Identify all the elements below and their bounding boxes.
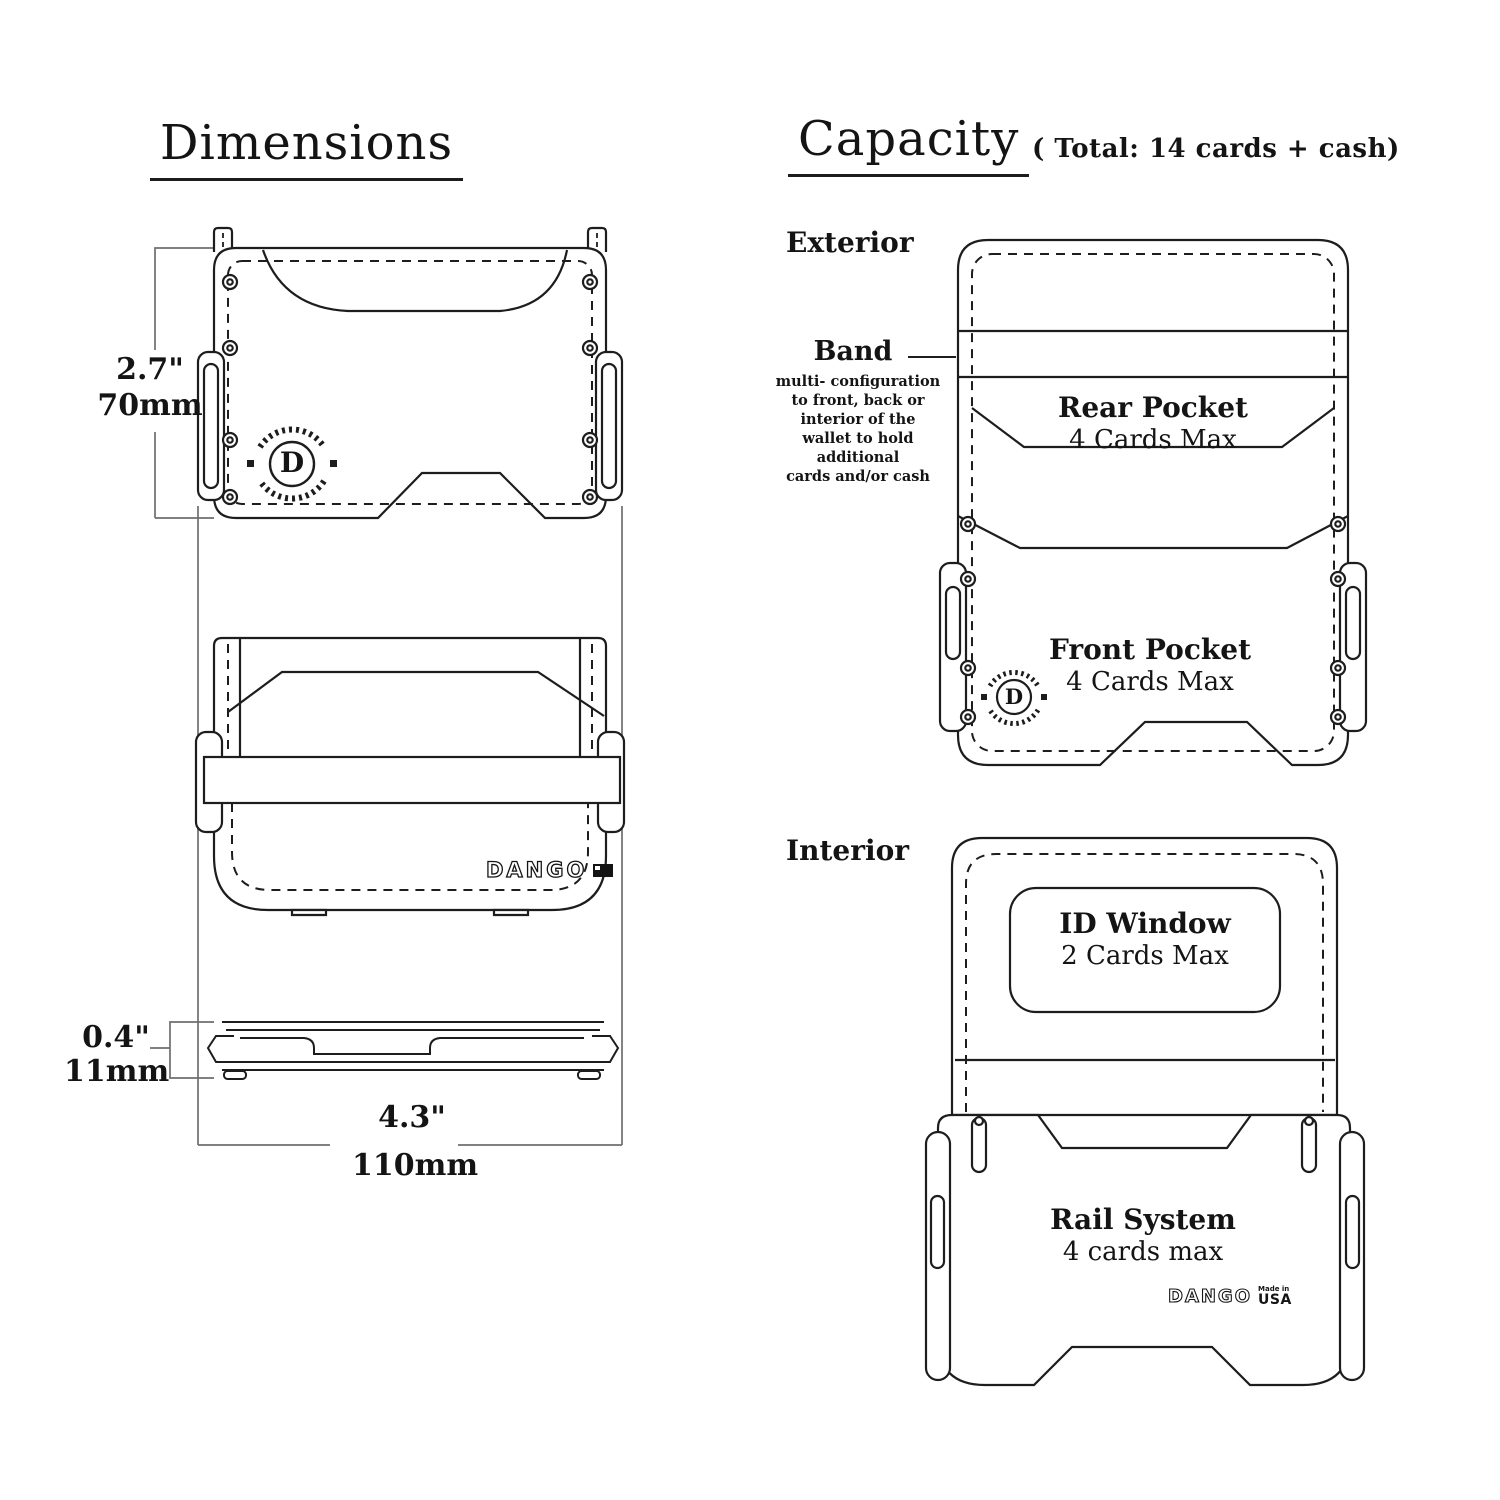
thickness-dimension-mm: 11mm	[64, 1054, 168, 1089]
band-description: multi- configuration to front, back or i…	[768, 372, 948, 486]
front-pocket-capacity: 4 Cards Max	[1020, 666, 1280, 700]
dango-logo-text: DANGO	[1168, 1286, 1252, 1307]
rail-system-label: Rail System	[1013, 1204, 1273, 1236]
side-view-drawing	[208, 1022, 618, 1079]
exterior-label: Exterior	[786, 226, 914, 259]
id-window-capacity: 2 Cards Max	[1015, 940, 1275, 974]
front-view-drawing	[198, 228, 622, 518]
interior-label: Interior	[786, 834, 909, 867]
front-pocket-annotation: Front Pocket 4 Cards Max	[1020, 634, 1280, 700]
badge-letter-exterior: D	[996, 684, 1032, 709]
dango-logo-back-view: DANGO	[486, 858, 613, 882]
band-desc-line: wallet to hold additional	[768, 429, 948, 467]
wallet-spec-diagram: Dimensions Capacity ( Total: 14 cards + …	[0, 0, 1500, 1500]
height-dimension-inches: 2.7"	[95, 352, 205, 387]
dango-flag-icon	[593, 864, 613, 877]
rail-system-annotation: Rail System 4 cards max	[1013, 1204, 1273, 1270]
rear-pocket-capacity: 4 Cards Max	[1023, 424, 1283, 458]
badge-letter-front-view: D	[272, 446, 312, 479]
rear-pocket-annotation: Rear Pocket 4 Cards Max	[1023, 392, 1283, 458]
id-window-label: ID Window	[1015, 908, 1275, 940]
band-desc-line: interior of the	[768, 410, 948, 429]
width-dimension-mm: 110mm	[352, 1148, 472, 1183]
height-dimension-mm: 70mm	[95, 388, 205, 423]
front-pocket-label: Front Pocket	[1020, 634, 1280, 666]
thickness-dimension-inches: 0.4"	[64, 1020, 168, 1055]
capacity-title: Capacity	[788, 114, 1029, 177]
dango-logo-text: DANGO	[486, 858, 587, 882]
width-dimension-inches: 4.3"	[352, 1100, 472, 1135]
usa-text: USA	[1258, 1293, 1292, 1307]
dimensions-title: Dimensions	[150, 118, 463, 181]
diagram-line-art	[0, 0, 1500, 1500]
band-desc-line: to front, back or	[768, 391, 948, 410]
rail-system-capacity: 4 cards max	[1013, 1236, 1273, 1270]
band-desc-line: multi- configuration	[768, 372, 948, 391]
dango-logo-interior: DANGO Made in USA	[1168, 1286, 1292, 1307]
rear-pocket-label: Rear Pocket	[1023, 392, 1283, 424]
capacity-note: ( Total: 14 cards + cash)	[1032, 134, 1400, 164]
band-desc-line: cards and/or cash	[768, 467, 948, 486]
id-window-annotation: ID Window 2 Cards Max	[1015, 908, 1275, 974]
band-label: Band	[798, 336, 908, 367]
made-in-usa-mark: Made in USA	[1258, 1286, 1292, 1307]
